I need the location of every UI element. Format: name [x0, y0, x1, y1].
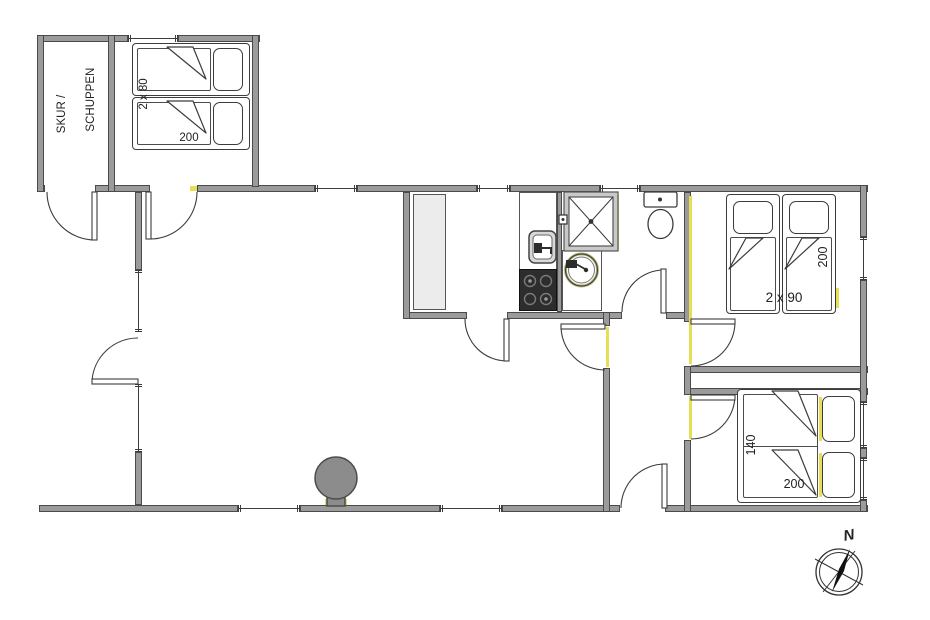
door-bedroom-se: [691, 395, 735, 439]
wall-segment: [603, 312, 610, 326]
door-terrace-west: [92, 338, 138, 384]
door-hallway: [561, 324, 605, 370]
window: [860, 458, 867, 500]
wall-accent: [689, 196, 692, 364]
cooktop-icon: [519, 269, 557, 311]
pillow: [213, 102, 243, 145]
wall-segment: [135, 452, 142, 505]
bed-length-label-nw: 200: [169, 131, 209, 145]
wall-segment: [135, 192, 142, 270]
wall-segment: [510, 185, 600, 192]
wall-segment: [684, 366, 868, 373]
wall-segment: [403, 192, 410, 319]
wall-segment: [640, 185, 868, 192]
bed-width-label-se: 140: [744, 425, 758, 465]
pillow: [822, 452, 855, 498]
window: [238, 505, 300, 512]
shed-label-line1: SKUR /: [56, 95, 68, 133]
window: [440, 505, 502, 512]
door-bathroom: [622, 269, 666, 313]
wall-segment: [684, 366, 691, 395]
pillow-accent: [819, 453, 822, 497]
door-kitchen: [465, 319, 509, 361]
door-threshold: [689, 396, 692, 439]
fireplace-icon: [315, 457, 357, 506]
window: [135, 384, 142, 452]
window: [315, 185, 357, 192]
wall-accent: [190, 186, 197, 191]
window: [128, 35, 178, 42]
wall-segment: [357, 185, 477, 192]
door-shed: [47, 192, 97, 240]
door-entry: [146, 192, 197, 239]
wall-segment: [860, 500, 867, 512]
wall-segment: [860, 448, 867, 458]
wall-segment: [603, 368, 610, 512]
bathroom-vanity-counter: [562, 250, 602, 311]
compass-north-icon: [815, 549, 863, 595]
wall-segment: [665, 505, 868, 512]
door-bedroom-east: [691, 319, 735, 366]
wall-segment: [860, 280, 867, 402]
bed-length-label-se: 200: [772, 476, 816, 492]
bed-width-label-nw: 2 x 80: [137, 54, 151, 134]
window: [860, 237, 867, 280]
floor-plan: SKUR / SCHUPPEN 2 x 80 200 2 x 90 200 14…: [0, 0, 930, 620]
toilet-icon: [644, 192, 677, 239]
pillow: [789, 201, 829, 234]
pillow: [822, 396, 855, 442]
shed-label: SKUR / SCHUPPEN: [57, 54, 97, 174]
compass-north-label: N: [837, 525, 862, 547]
wall-segment: [39, 505, 238, 512]
door-threshold: [606, 327, 609, 367]
pillow: [733, 201, 773, 234]
wall-segment: [860, 185, 867, 237]
shower-cabin-icon: [559, 192, 618, 251]
wall-segment: [252, 35, 259, 187]
bed-width-label-east: 2 x 90: [749, 290, 819, 306]
blanket-fold: [167, 47, 819, 495]
wall-segment: [178, 35, 260, 42]
wall-accent: [325, 499, 327, 505]
wall-segment: [95, 185, 150, 192]
wall-segment: [108, 35, 115, 192]
window: [135, 270, 142, 332]
wall-segment: [684, 440, 691, 512]
window: [477, 185, 510, 192]
door-hall-exterior: [621, 464, 667, 508]
wall-segment: [300, 505, 440, 512]
wall-accent: [616, 195, 619, 250]
wall-accent: [345, 499, 347, 505]
wall-segment: [37, 35, 44, 192]
bed-length-label-east: 200: [816, 235, 830, 279]
window: [600, 185, 640, 192]
window: [860, 402, 867, 448]
wall-accent: [836, 288, 839, 308]
kitchen-counter: [413, 194, 446, 310]
pillow: [213, 48, 243, 91]
wall-segment: [403, 312, 467, 319]
shed-label-line2: SCHUPPEN: [85, 68, 97, 132]
pillow-accent: [819, 397, 822, 441]
